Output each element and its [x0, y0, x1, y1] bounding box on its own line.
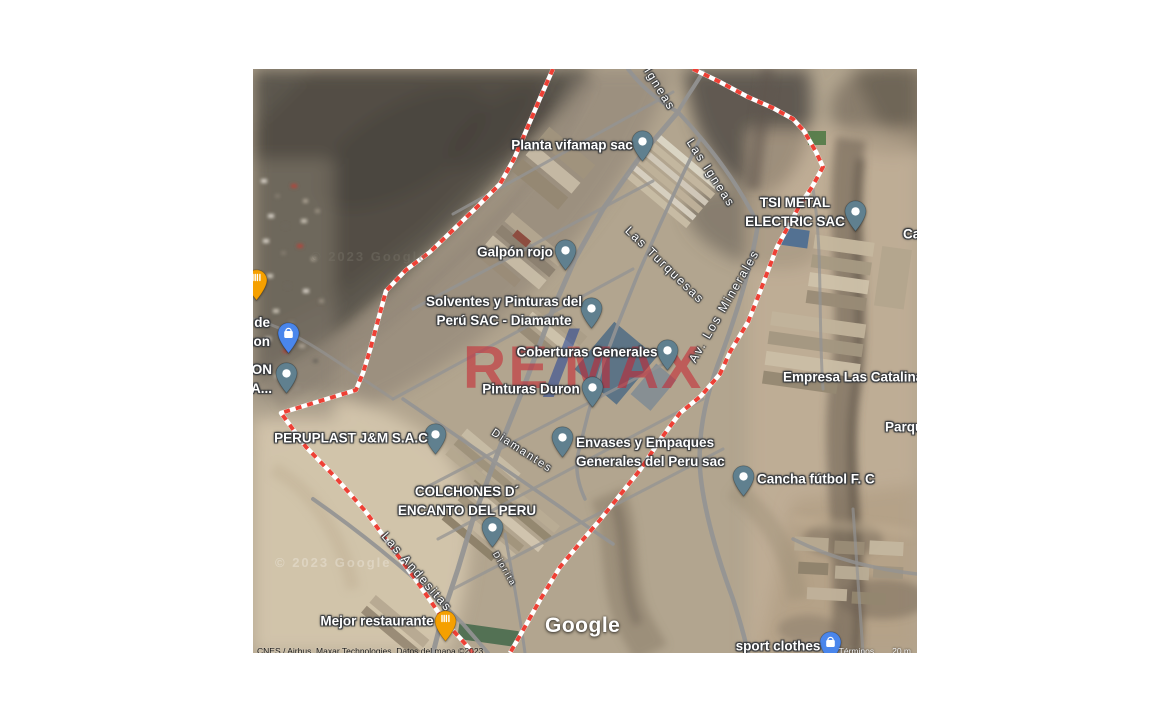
label-mejor-restaurante[interactable]: Mejor restaurante	[320, 612, 433, 631]
label-tsi-metal-electric[interactable]: TSI METALELECTRIC SAC	[745, 193, 845, 231]
label-empresa-las-catalina[interactable]: Empresa Las Catalina	[783, 368, 917, 387]
page: RE/MAX © 2023 Google © 2023 Google Googl…	[0, 0, 1170, 720]
pin-pinturas-duron[interactable]	[581, 376, 604, 408]
poi-dot-icon	[275, 362, 298, 394]
label-galpon-rojo[interactable]: Galpón rojo	[477, 243, 553, 262]
restaurant-icon	[253, 269, 268, 301]
poi-dot-icon	[580, 297, 603, 329]
terms-link[interactable]: Términos	[839, 646, 874, 653]
label-coberturas-generales[interactable]: Coberturas Generales	[516, 343, 657, 362]
google-logo[interactable]: Google	[545, 614, 620, 638]
pin-coberturas[interactable]	[656, 339, 679, 371]
pin-cancha-futbol[interactable]	[732, 465, 755, 497]
ghost-imagery-credit: © 2023 Google	[275, 555, 392, 570]
pin-restaurant-bottom[interactable]	[434, 610, 457, 642]
pin-planta-vifamap[interactable]	[631, 130, 654, 162]
poi-dot-icon	[844, 200, 867, 232]
ghost-imagery-credit-2: © 2023 Google	[311, 249, 428, 264]
map-viewport[interactable]: RE/MAX © 2023 Google © 2023 Google Googl…	[253, 69, 917, 653]
pin-colchones[interactable]	[481, 516, 504, 548]
pin-envases[interactable]	[551, 426, 574, 458]
pin-tsi-metal[interactable]	[844, 200, 867, 232]
label-fragment-ca[interactable]: Ca	[903, 225, 917, 244]
label-peruplast[interactable]: PERUPLAST J&M S.A.C	[274, 429, 428, 448]
pin-solventes[interactable]	[580, 297, 603, 329]
poi-dot-icon	[551, 426, 574, 458]
label-cancha-futbol[interactable]: Cancha fútbol F. C	[757, 470, 875, 489]
label-planta-vifamap[interactable]: Planta vifamap sac	[511, 136, 633, 155]
pin-left-poi[interactable]	[275, 362, 298, 394]
poi-dot-icon	[554, 239, 577, 271]
label-envases-empaques[interactable]: Envases y EmpaquesGenerales del Peru sac	[576, 433, 725, 471]
attribution-bar: CNES / Airbus, Maxar Technologies, Datos…	[253, 646, 917, 653]
imagery-credits: CNES / Airbus, Maxar Technologies, Datos…	[257, 646, 483, 653]
pin-galpon-rojo[interactable]	[554, 239, 577, 271]
label-parque[interactable]: Parqu	[885, 418, 917, 437]
label-colchones-encanto[interactable]: COLCHONES D´ENCANTO DEL PERU	[398, 482, 536, 520]
label-solventes-pinturas[interactable]: Solventes y Pinturas delPerú SAC - Diama…	[426, 292, 582, 330]
map-scale: 20 m	[892, 646, 911, 653]
poi-dot-icon	[732, 465, 755, 497]
poi-dot-icon	[581, 376, 604, 408]
restaurant-icon	[434, 610, 457, 642]
label-fragment-r-de[interactable]: r deson	[253, 313, 270, 351]
poi-dot-icon	[481, 516, 504, 548]
label-fragment-ion-da[interactable]: IONDA...	[253, 360, 272, 398]
label-pinturas-duron[interactable]: Pinturas Duron	[482, 380, 580, 399]
shopping-bag-icon	[277, 322, 300, 354]
pin-shopping-left[interactable]	[277, 322, 300, 354]
poi-dot-icon	[631, 130, 654, 162]
poi-dot-icon	[656, 339, 679, 371]
pin-restaurant-left[interactable]	[253, 269, 268, 301]
